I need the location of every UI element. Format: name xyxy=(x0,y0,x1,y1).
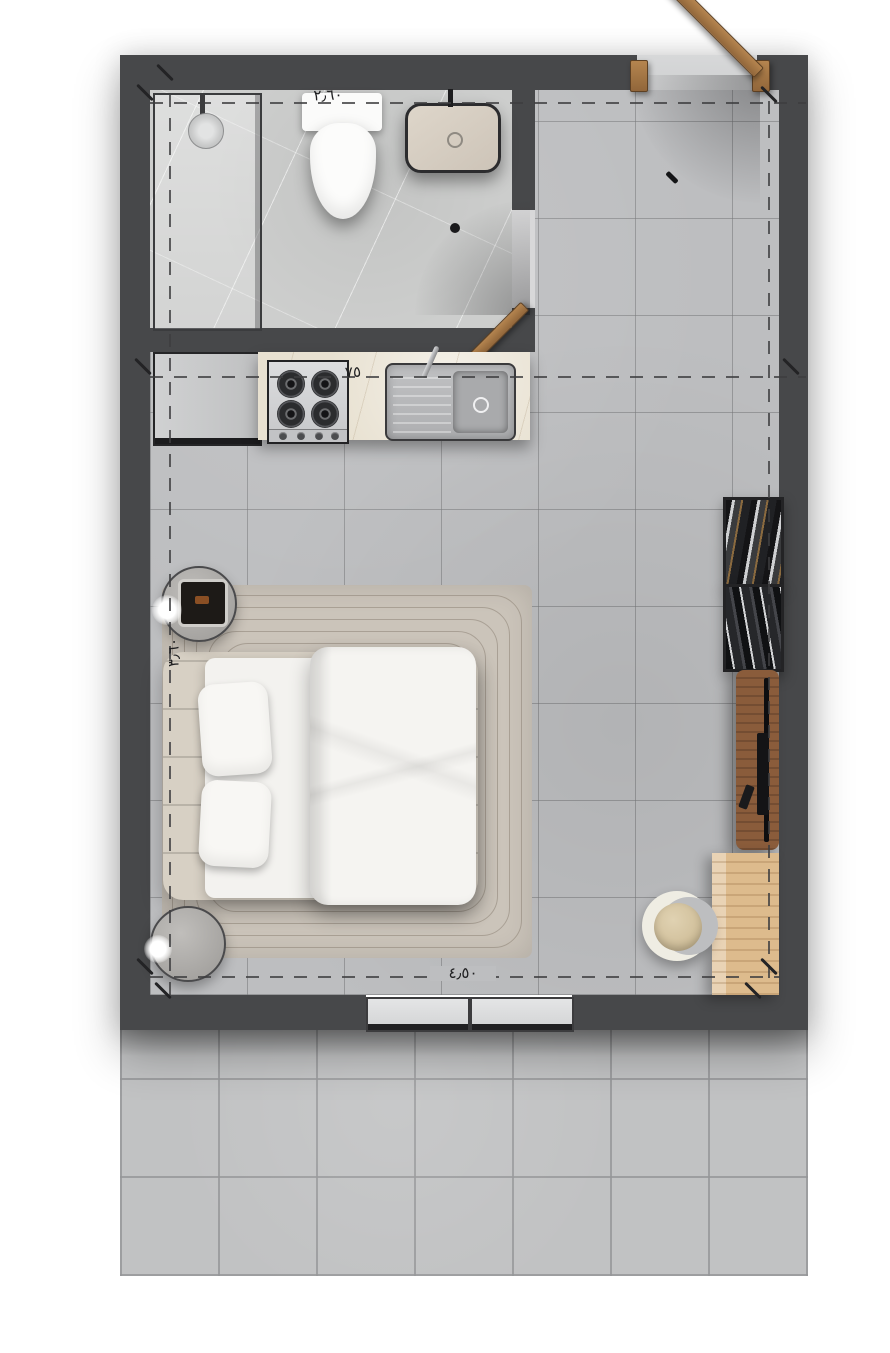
sink-faucet-icon xyxy=(448,89,453,107)
dimension-label-counter: ٧٥ xyxy=(332,364,375,381)
wall-left xyxy=(120,55,150,1030)
dimension-line-kitchen xyxy=(150,376,806,378)
door-stop xyxy=(630,60,648,92)
shower-head-icon xyxy=(188,113,224,149)
wall-bottom-right xyxy=(572,995,808,1030)
dimension-line-left xyxy=(169,90,171,995)
pillow xyxy=(198,779,272,869)
terrace-floor xyxy=(120,1030,808,1276)
dimension-label-room-width: ٤٫٥٠ xyxy=(430,966,496,981)
tray-icon xyxy=(178,579,228,627)
chair-seat xyxy=(654,903,702,951)
bathroom-door-handle xyxy=(450,223,460,233)
sliding-window-panel xyxy=(470,997,574,1032)
wardrobe-icon xyxy=(723,584,784,672)
wall-top xyxy=(120,55,637,90)
shower-arm xyxy=(200,95,205,115)
dimension-label-room-height: ٣٫٦٠ xyxy=(167,621,182,685)
dimension-label-bathroom-width: ٢٫٦٠ xyxy=(296,87,360,104)
kitchen-sink-icon xyxy=(385,363,516,441)
duvet xyxy=(310,647,476,905)
sliding-window-panel xyxy=(366,997,470,1032)
bathroom-wall-right-upper xyxy=(512,90,535,210)
dimension-line-right xyxy=(768,90,770,978)
apartment-plan: ٢٫٦٠ ٧٥ ٣٫٦٠ ٤٫٥٠ xyxy=(120,55,808,1030)
bathroom-sink-icon xyxy=(405,103,501,173)
wall-bottom-left xyxy=(120,995,366,1030)
floor-plan-canvas: ٢٫٦٠ ٧٥ ٣٫٦٠ ٤٫٥٠ xyxy=(0,0,890,1353)
dimension-line-top xyxy=(150,102,806,104)
wardrobe-icon xyxy=(723,497,784,588)
pillow xyxy=(197,681,273,778)
lamp-icon xyxy=(144,935,172,963)
